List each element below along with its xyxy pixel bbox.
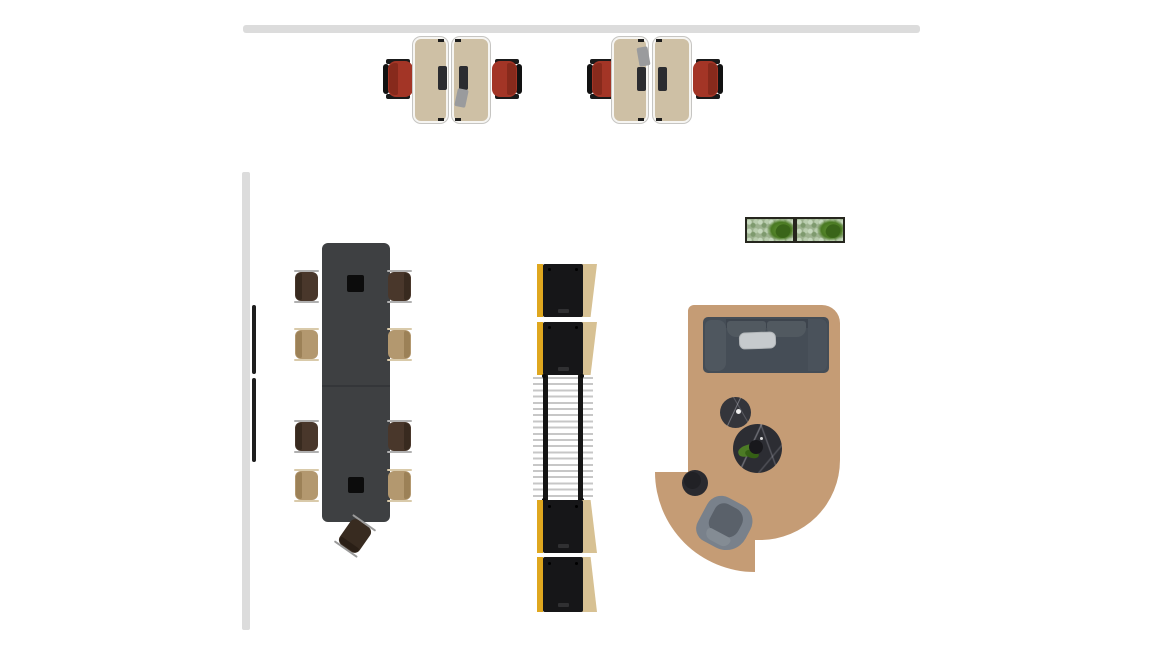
chair-back-cushion xyxy=(708,63,717,95)
locker-dot xyxy=(548,268,551,271)
sofa-right-arm xyxy=(808,319,827,371)
chair-back-cushion xyxy=(507,63,516,95)
locker-shadow xyxy=(581,557,597,612)
chair-back-cushion xyxy=(404,273,410,300)
sofa-pillow xyxy=(739,331,777,349)
conference-chair-tan[interactable] xyxy=(387,469,412,502)
chair-frame-bottom xyxy=(294,451,319,453)
table-tray xyxy=(749,440,763,454)
locker-shadow xyxy=(581,322,597,375)
sofa[interactable] xyxy=(703,317,829,373)
planter-box xyxy=(795,217,845,243)
conference-chair-dark[interactable] xyxy=(294,270,319,303)
desk-clamp xyxy=(455,39,461,42)
wall-screen-lower[interactable] xyxy=(252,378,256,462)
ladder-foot xyxy=(542,374,546,378)
workstation-2[interactable] xyxy=(587,37,726,127)
desk-clamp xyxy=(438,39,444,42)
table-speck xyxy=(760,437,763,440)
conference-chair-tan[interactable] xyxy=(387,328,412,361)
locker-unit-3[interactable] xyxy=(537,500,597,553)
chair-frame-bottom xyxy=(387,451,412,453)
locker-side-strip xyxy=(537,500,543,553)
conference-table[interactable] xyxy=(322,243,390,522)
floor-plan xyxy=(0,0,1166,656)
locker-shadow xyxy=(581,500,597,553)
locker-dot xyxy=(575,268,578,271)
locker-side-strip xyxy=(537,557,543,612)
monitor-left xyxy=(438,66,447,90)
locker-dot xyxy=(575,562,578,565)
conference-chair-tan[interactable] xyxy=(294,328,319,361)
chair-back-cushion xyxy=(296,273,302,300)
locker-unit-2[interactable] xyxy=(537,322,597,375)
chair-frame-bottom xyxy=(387,500,412,502)
chair-back-cushion xyxy=(389,63,398,95)
chair-back-cushion xyxy=(404,472,410,499)
keyboard xyxy=(636,46,650,67)
conference-chair-dark[interactable] xyxy=(387,420,412,453)
desk-clamp xyxy=(656,118,662,121)
coffee-table-large[interactable] xyxy=(733,424,782,473)
coffee-table-small[interactable] xyxy=(720,397,751,428)
locker-unit-4[interactable] xyxy=(537,557,597,612)
locker-shadow xyxy=(581,264,597,317)
desk-clamp xyxy=(656,39,662,42)
locker-dot xyxy=(575,505,578,508)
chair-frame-bottom xyxy=(387,359,412,361)
office-chair-red-left[interactable] xyxy=(383,59,413,99)
locker-handle xyxy=(558,367,569,371)
desk-clamp xyxy=(438,118,444,121)
conference-chair-dark[interactable] xyxy=(387,270,412,303)
planter-box xyxy=(745,217,795,243)
chair-back-cushion xyxy=(296,472,302,499)
left-wall xyxy=(242,172,250,630)
chair-back-cushion xyxy=(404,331,410,358)
locker-dot xyxy=(548,562,551,565)
ladder-rail-right xyxy=(578,374,583,502)
desk-right[interactable] xyxy=(452,37,490,123)
conference-chair-tan[interactable] xyxy=(294,469,319,502)
ladder-rungs xyxy=(533,377,593,499)
table-knob xyxy=(736,409,741,414)
locker-dot xyxy=(575,326,578,329)
chair-back-cushion xyxy=(593,63,602,95)
power-grommet xyxy=(348,477,364,493)
locker-handle xyxy=(558,603,569,607)
chair-back-cushion xyxy=(296,331,302,358)
desk-clamp xyxy=(638,39,644,42)
planter[interactable] xyxy=(745,217,845,243)
workstation-1[interactable] xyxy=(383,37,522,127)
desk-clamp xyxy=(455,118,461,121)
ladder-foot xyxy=(580,374,584,378)
chair-frame-bottom xyxy=(294,301,319,303)
table-seam xyxy=(322,385,390,387)
monitor-right xyxy=(658,67,667,91)
ladder-rail-left xyxy=(543,374,548,502)
monitor-left xyxy=(637,67,646,91)
locker-handle xyxy=(558,309,569,313)
ladder-shelf[interactable] xyxy=(532,374,594,502)
locker-dot xyxy=(548,326,551,329)
power-grommet xyxy=(347,275,364,292)
chair-back-cushion xyxy=(404,423,410,450)
chair-frame-bottom xyxy=(294,359,319,361)
stool-top xyxy=(684,472,701,489)
locker-side-strip xyxy=(537,264,543,317)
locker-unit-1[interactable] xyxy=(537,264,597,317)
locker-handle xyxy=(558,544,569,548)
monitor-right xyxy=(459,66,468,90)
locker-dot xyxy=(548,505,551,508)
chair-back-cushion xyxy=(296,423,302,450)
top-wall xyxy=(243,25,920,33)
side-stool[interactable] xyxy=(682,470,708,496)
locker-side-strip xyxy=(537,322,543,375)
wall-screen-upper[interactable] xyxy=(252,305,256,374)
office-chair-red-right[interactable] xyxy=(693,59,723,99)
chair-frame-bottom xyxy=(387,301,412,303)
office-chair-red-right[interactable] xyxy=(492,59,522,99)
sofa-chaise-left xyxy=(705,320,726,371)
chair-frame-bottom xyxy=(294,500,319,502)
conference-chair-dark[interactable] xyxy=(294,420,319,453)
desk-clamp xyxy=(638,118,644,121)
